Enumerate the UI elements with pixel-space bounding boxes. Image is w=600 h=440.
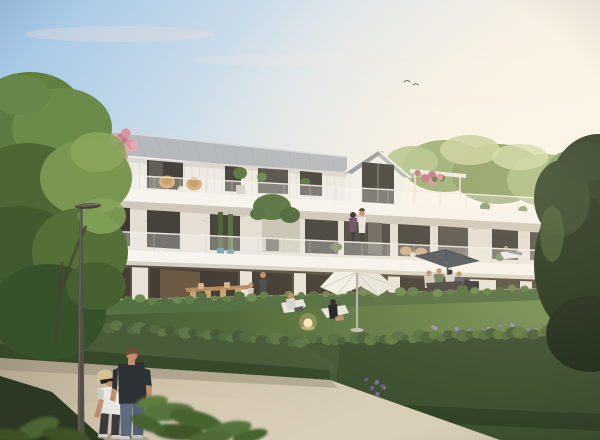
- architectural-rendering: [0, 0, 600, 440]
- vignette: [0, 0, 600, 440]
